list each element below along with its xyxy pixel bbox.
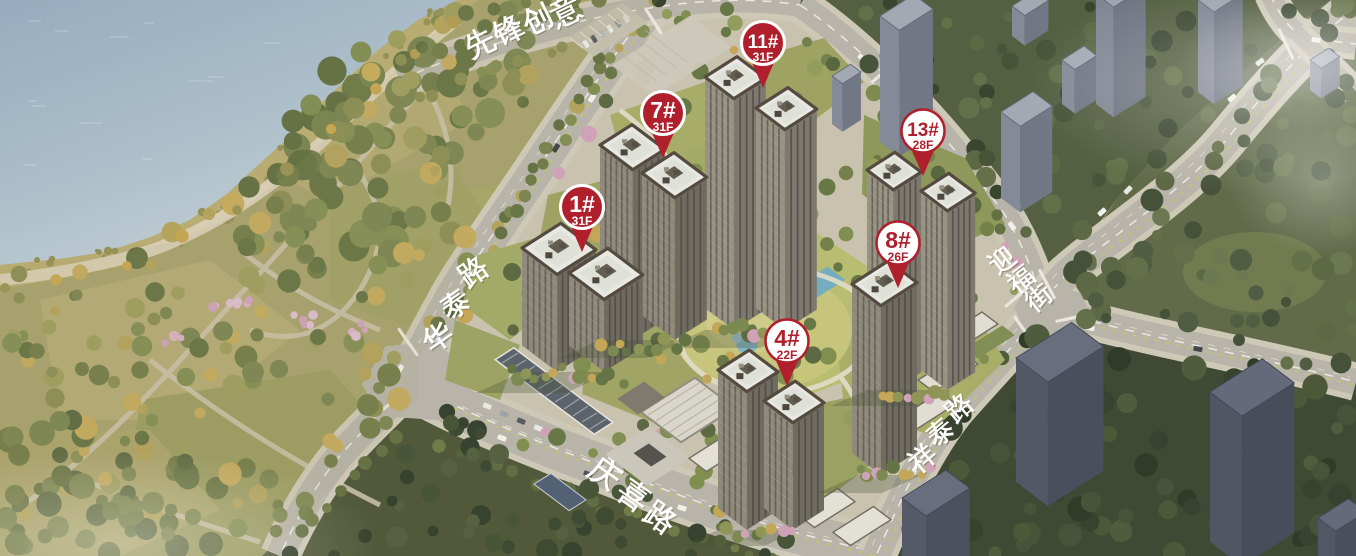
svg-text:22F: 22F — [777, 348, 798, 362]
svg-text:31F: 31F — [572, 214, 593, 228]
svg-text:31F: 31F — [653, 120, 674, 134]
svg-text:28F: 28F — [913, 138, 934, 152]
svg-text:26F: 26F — [888, 250, 909, 264]
svg-text:31F: 31F — [753, 50, 774, 64]
